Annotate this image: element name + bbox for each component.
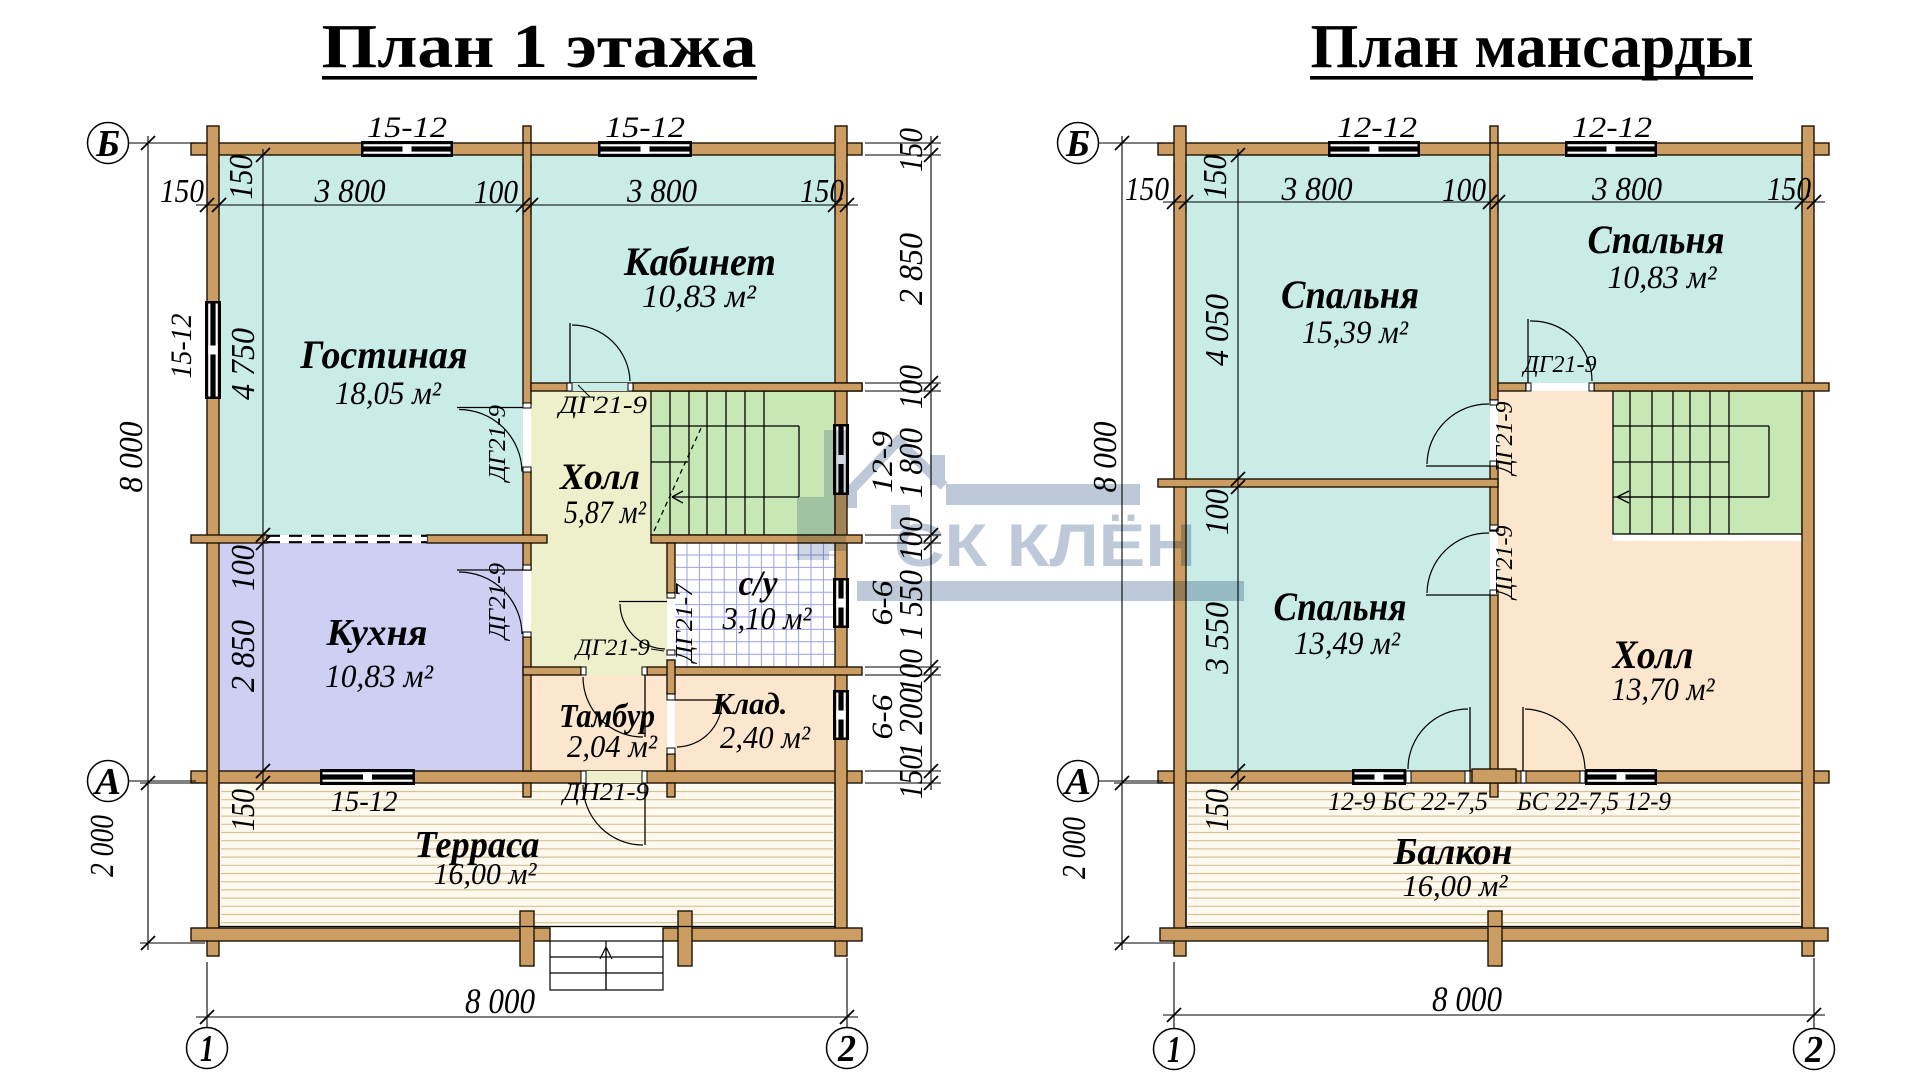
svg-text:Клад.: Клад. bbox=[712, 686, 788, 721]
svg-text:4 750: 4 750 bbox=[225, 328, 262, 400]
svg-text:ДГ21-7: ДГ21-7 bbox=[672, 583, 698, 664]
svg-text:100: 100 bbox=[1442, 172, 1486, 209]
svg-text:16,00 м²: 16,00 м² bbox=[434, 856, 538, 891]
svg-text:Холл: Холл bbox=[1611, 632, 1694, 677]
svg-text:2,04 м²: 2,04 м² bbox=[567, 728, 658, 764]
svg-text:10,83 м²: 10,83 м² bbox=[642, 279, 757, 315]
svg-text:ДГ21-9: ДГ21-9 bbox=[1492, 402, 1518, 477]
svg-text:16,00 м²: 16,00 м² bbox=[1403, 868, 1509, 903]
svg-text:100: 100 bbox=[225, 545, 262, 591]
svg-text:150: 150 bbox=[893, 128, 930, 172]
svg-text:8 000: 8 000 bbox=[1432, 979, 1502, 1019]
svg-text:15,39 м²: 15,39 м² bbox=[1302, 315, 1409, 351]
svg-text:12-12: 12-12 bbox=[1337, 111, 1417, 144]
svg-text:6-6: 6-6 bbox=[866, 695, 899, 740]
svg-text:100: 100 bbox=[893, 365, 930, 409]
svg-text:13,49 м²: 13,49 м² bbox=[1294, 626, 1401, 662]
svg-text:Спальня: Спальня bbox=[1274, 584, 1407, 629]
svg-text:Спальня: Спальня bbox=[1281, 272, 1419, 317]
svg-text:150: 150 bbox=[1197, 155, 1234, 200]
svg-text:150: 150 bbox=[1767, 171, 1811, 208]
svg-text:ДГ21-9: ДГ21-9 bbox=[485, 405, 511, 483]
svg-text:1: 1 bbox=[1167, 1029, 1181, 1071]
svg-text:100: 100 bbox=[1199, 489, 1236, 535]
svg-text:ДГ21-9: ДГ21-9 bbox=[574, 635, 651, 660]
svg-text:Гостиная: Гостиная bbox=[300, 332, 468, 377]
svg-text:150: 150 bbox=[160, 173, 204, 210]
svg-text:ДГ21-9: ДГ21-9 bbox=[1492, 526, 1518, 601]
svg-text:А: А bbox=[1063, 761, 1091, 803]
svg-text:12-9 БС 22-7,5: 12-9 БС 22-7,5 bbox=[1328, 787, 1488, 816]
svg-text:Холл: Холл bbox=[559, 457, 640, 498]
svg-text:12-12: 12-12 bbox=[1572, 111, 1652, 144]
svg-text:1: 1 bbox=[200, 1028, 214, 1070]
svg-text:8 000: 8 000 bbox=[465, 981, 535, 1021]
svg-text:150: 150 bbox=[800, 173, 844, 210]
svg-text:ДГ21-9: ДГ21-9 bbox=[485, 563, 511, 641]
svg-text:150: 150 bbox=[223, 155, 260, 200]
svg-text:3 550: 3 550 bbox=[1199, 602, 1236, 675]
svg-text:3 800: 3 800 bbox=[314, 173, 386, 210]
svg-text:3 800: 3 800 bbox=[1281, 171, 1353, 208]
svg-text:8 000: 8 000 bbox=[113, 422, 150, 493]
svg-text:2 000: 2 000 bbox=[84, 815, 121, 877]
svg-text:Б: Б bbox=[95, 123, 120, 165]
svg-text:15-12: 15-12 bbox=[367, 111, 447, 144]
svg-text:СК КЛЁН: СК КЛЁН bbox=[894, 512, 1196, 579]
svg-text:8 000: 8 000 bbox=[1087, 422, 1124, 493]
svg-text:150: 150 bbox=[1125, 171, 1169, 208]
svg-text:2: 2 bbox=[837, 1028, 856, 1070]
svg-text:10,83 м²: 10,83 м² bbox=[1608, 260, 1718, 296]
svg-text:ДГ21-9: ДГ21-9 bbox=[1521, 352, 1596, 378]
svg-text:5,87 м²: 5,87 м² bbox=[564, 495, 647, 531]
svg-text:15-12: 15-12 bbox=[165, 314, 198, 379]
svg-text:Кабинет: Кабинет bbox=[623, 239, 776, 284]
svg-text:Кухня: Кухня bbox=[325, 612, 427, 654]
svg-text:15-12: 15-12 bbox=[331, 785, 398, 818]
svg-text:10,83 м²: 10,83 м² bbox=[325, 659, 434, 695]
svg-text:150: 150 bbox=[893, 755, 930, 799]
svg-text:План 1 этажа: План 1 этажа bbox=[322, 13, 757, 81]
svg-text:с/у: с/у bbox=[739, 563, 779, 603]
svg-text:3 800: 3 800 bbox=[626, 173, 697, 210]
svg-text:3 800: 3 800 bbox=[1591, 171, 1662, 208]
svg-text:ДГ21-9: ДГ21-9 bbox=[557, 392, 648, 419]
svg-text:Б: Б bbox=[1065, 123, 1090, 165]
svg-text:2,40 м²: 2,40 м² bbox=[720, 719, 811, 755]
svg-text:3,10 м²: 3,10 м² bbox=[722, 600, 813, 636]
svg-text:2 850: 2 850 bbox=[225, 620, 262, 692]
svg-text:18,05 м²: 18,05 м² bbox=[335, 376, 442, 412]
svg-text:Балкон: Балкон bbox=[1393, 831, 1513, 873]
svg-text:15-12: 15-12 bbox=[605, 111, 685, 144]
svg-text:2 850: 2 850 bbox=[893, 233, 930, 305]
svg-text:2: 2 bbox=[1804, 1029, 1823, 1071]
svg-text:4 050: 4 050 bbox=[1199, 294, 1236, 366]
svg-text:БС 22-7,5 12-9: БС 22-7,5 12-9 bbox=[1516, 787, 1671, 816]
svg-text:150: 150 bbox=[225, 789, 262, 831]
svg-text:100: 100 bbox=[893, 649, 930, 693]
svg-text:2 000: 2 000 bbox=[1056, 817, 1093, 879]
svg-text:150: 150 bbox=[1199, 789, 1236, 831]
svg-text:ДН21-9: ДН21-9 bbox=[561, 779, 650, 806]
svg-text:А: А bbox=[93, 761, 121, 803]
svg-text:100: 100 bbox=[474, 174, 518, 211]
svg-text:Спальня: Спальня bbox=[1588, 217, 1725, 262]
svg-text:План мансарды: План мансарды bbox=[1311, 13, 1754, 81]
svg-text:13,70 м²: 13,70 м² bbox=[1612, 672, 1716, 708]
